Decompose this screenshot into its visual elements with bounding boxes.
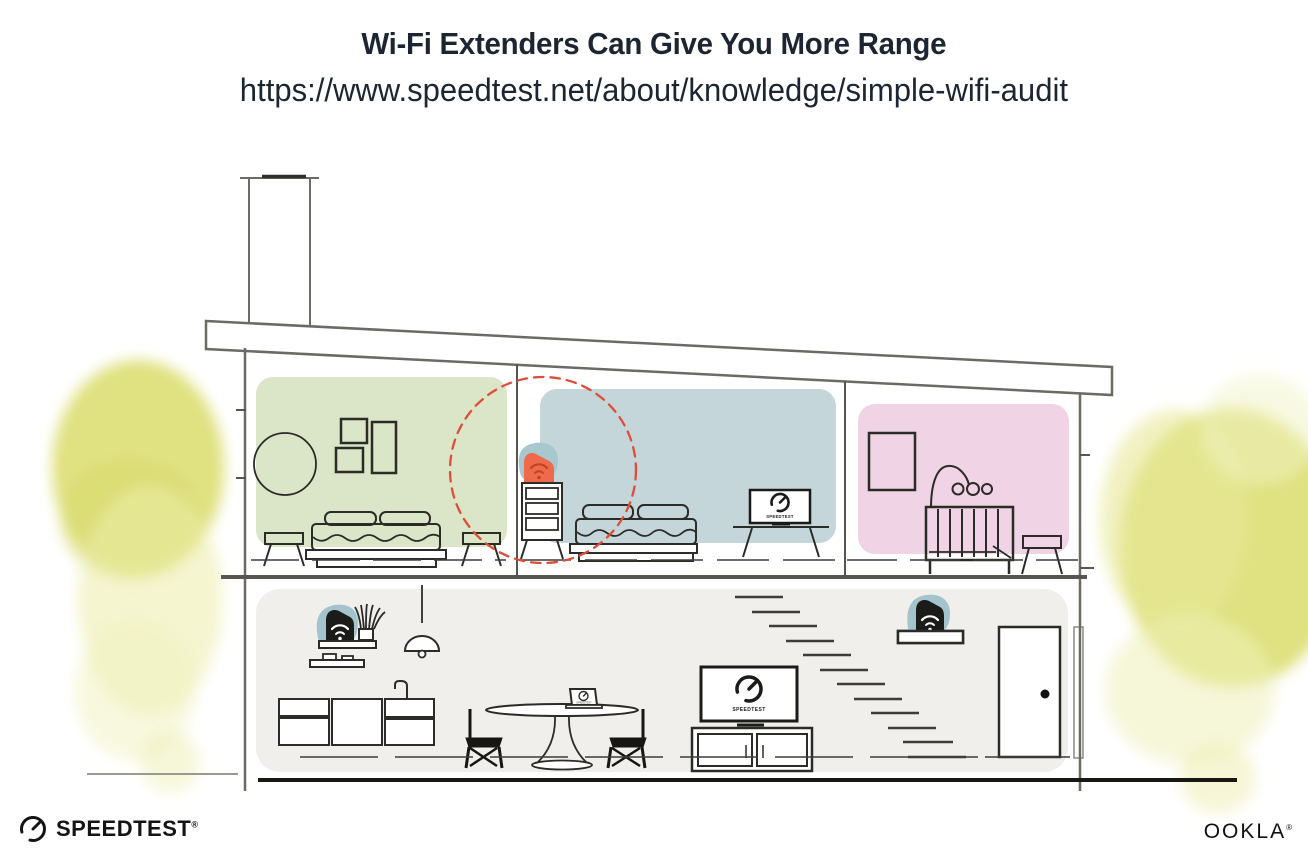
speedtest-wordmark: SPEEDTEST®	[56, 816, 198, 842]
foliage-right	[1100, 375, 1308, 813]
bedroom-tv-label: SPEEDTEST	[766, 514, 794, 519]
media-console	[692, 728, 812, 771]
room-bg-nursery	[858, 404, 1069, 554]
front-door	[999, 627, 1060, 757]
foliage-left	[52, 360, 224, 792]
dresser	[521, 483, 563, 559]
door-knob	[1041, 690, 1050, 699]
living-room-tv-label: SPEEDTEST	[732, 707, 765, 713]
wifi-extender	[519, 443, 558, 482]
wifi-extender-infographic: Wi-Fi Extenders Can Give You More Range …	[0, 0, 1308, 861]
laptop-label: SPEEDTEST	[576, 701, 592, 705]
speedtest-logo: SPEEDTEST®	[18, 814, 198, 844]
house-cross-section: SPEEDTEST	[0, 0, 1308, 861]
speedtest-gauge-icon	[18, 814, 48, 844]
ookla-logo: OOKLA®	[1204, 820, 1292, 844]
chimney	[240, 177, 319, 329]
living-room-tv: SPEEDTEST	[701, 667, 797, 725]
downspout	[1074, 627, 1083, 758]
registered-mark: ®	[191, 820, 198, 830]
ookla-wordmark: OOKLA	[1204, 820, 1286, 843]
registered-mark: ®	[1286, 823, 1292, 832]
